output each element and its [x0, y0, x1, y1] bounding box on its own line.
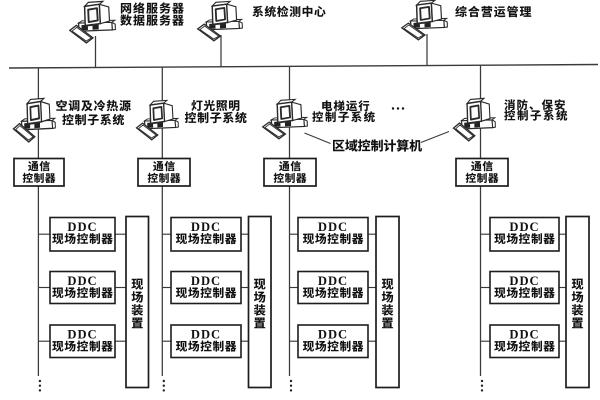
- svg-text:DDC: DDC: [318, 220, 348, 234]
- svg-text:DDC: DDC: [318, 274, 348, 288]
- svg-text:DDC: DDC: [67, 274, 97, 288]
- svg-text:DDC: DDC: [191, 274, 221, 288]
- svg-text:DDC: DDC: [67, 220, 97, 234]
- svg-text:DDC: DDC: [509, 220, 539, 234]
- svg-text:DDC: DDC: [191, 328, 221, 342]
- svg-text:DDC: DDC: [318, 328, 348, 342]
- svg-text:DDC: DDC: [67, 328, 97, 342]
- svg-text:DDC: DDC: [191, 220, 221, 234]
- svg-text:DDC: DDC: [509, 274, 539, 288]
- svg-text:DDC: DDC: [509, 328, 539, 342]
